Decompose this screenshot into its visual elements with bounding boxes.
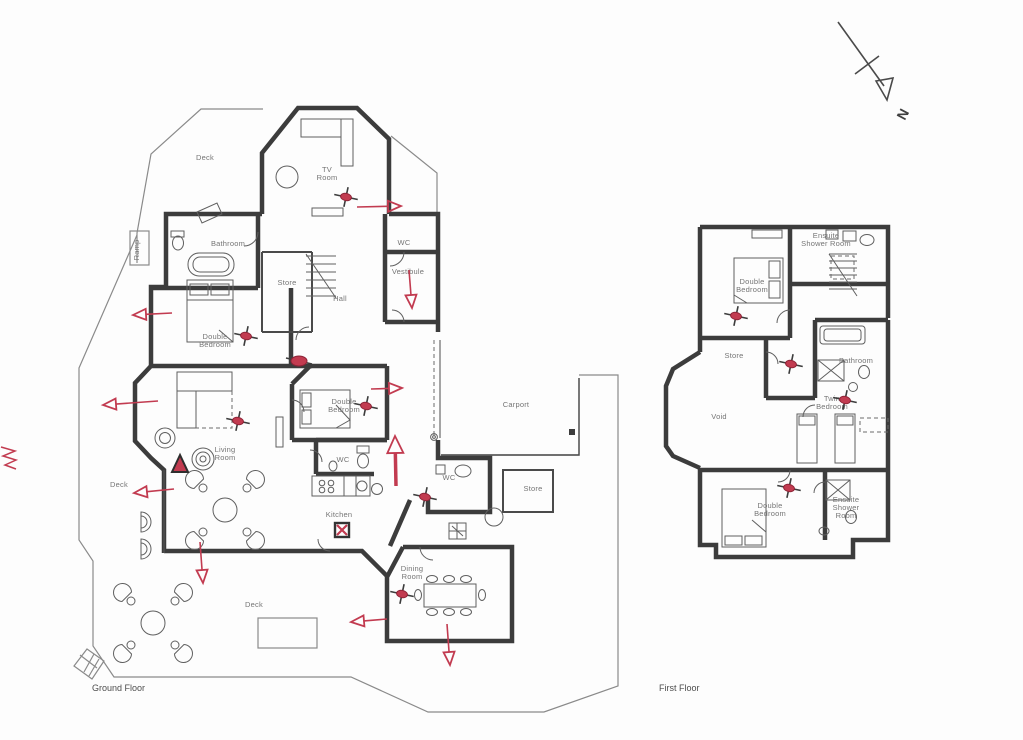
room-label-wc-east: WC [443, 473, 456, 482]
north-arrow: N [838, 22, 912, 122]
room-label-deck-north: Deck [196, 153, 214, 162]
stairs-first [829, 254, 857, 296]
smoke-detector-marker [388, 582, 416, 607]
room-label-deck-south: Deck [245, 600, 263, 609]
floor-plan-page: Ground Floor DeckTVRoomRampBathroomStore… [0, 0, 1023, 740]
room-label-deck-west: Deck [110, 480, 128, 489]
deck-chair [246, 531, 264, 549]
stairs-ground [306, 254, 336, 298]
room-label-store-ff: Store [725, 351, 744, 360]
assembly-point-marker [172, 455, 188, 472]
room-label-double-bedroom-west: DoubleBedroom [199, 332, 231, 349]
deck-chair [114, 644, 132, 662]
deck-chair [186, 471, 204, 489]
room-label-vestibule: Vestibule [392, 267, 424, 276]
ground-floor-furniture [114, 119, 503, 662]
room-label-store-east: Store [524, 484, 543, 493]
escape-route-arrow [103, 399, 158, 410]
ground-floor-title: Ground Floor [92, 683, 145, 693]
carport-outline [431, 340, 579, 455]
room-label-void: Void [711, 412, 726, 421]
deck-chair [174, 584, 192, 602]
deck-chair [114, 584, 132, 602]
room-label-kitchen: Kitchen [326, 510, 352, 519]
smoke-detector-marker [775, 476, 803, 501]
escape-route-arrow [357, 201, 401, 212]
smoke-detector-marker [777, 352, 805, 377]
edge-scribble-mark [1, 447, 16, 469]
room-label-store: Store [278, 278, 297, 287]
ground-floor-labels: DeckTVRoomRampBathroomStoreHallWCVestibu… [110, 153, 542, 609]
deck-chair [246, 471, 264, 489]
room-label-ramp: Ramp [132, 240, 141, 261]
first-floor-title: First Floor [659, 683, 700, 693]
ground-floor-walls [135, 108, 553, 641]
room-label-double-bedroom-south: DoubleBedroom [754, 501, 786, 518]
smoke-detector-marker [232, 324, 260, 349]
escape-route-arrow [444, 624, 455, 665]
room-label-bathroom: Bathroom [211, 239, 245, 248]
deck-planter [258, 618, 317, 648]
floor-plan-drawing: Ground Floor DeckTVRoomRampBathroomStore… [0, 0, 1023, 740]
escape-route-arrow [387, 436, 403, 486]
room-label-living-room: LivingRoom [215, 445, 236, 462]
first-floor-plan: First Floor EnsuiteShower RoomDoubleBedr… [659, 227, 888, 693]
escape-route-arrow [197, 542, 208, 583]
room-label-dining-room: DiningRoom [401, 564, 423, 581]
room-label-tv-room: TVRoom [317, 165, 338, 182]
deck-chair [174, 644, 192, 662]
room-label-double-bedroom-north: DoubleBedroom [736, 277, 768, 294]
escape-route-arrow [134, 486, 174, 497]
room-label-wc-mid: WC [337, 455, 350, 464]
north-label: N [893, 106, 912, 122]
smoke-detector-marker [722, 304, 750, 329]
smoke-detector-marker [411, 485, 439, 510]
room-label-carport: Carport [503, 400, 530, 409]
deck-furniture [114, 471, 265, 663]
escape-route-arrow [351, 615, 387, 626]
room-label-double-bedroom-mid: DoubleBedroom [328, 397, 360, 414]
steps-hatch [74, 649, 104, 679]
room-label-wc-north: WC [398, 238, 411, 247]
smoke-detector-marker [332, 185, 360, 210]
smoke-detector-marker [224, 409, 252, 434]
room-label-bathroom-ff: Bathroom [839, 356, 873, 365]
room-label-ensuite-shower-south: EnsuiteShowerRoom [833, 495, 860, 520]
room-label-hall: Hall [333, 294, 347, 303]
kitchen-cross-marker [335, 523, 349, 537]
